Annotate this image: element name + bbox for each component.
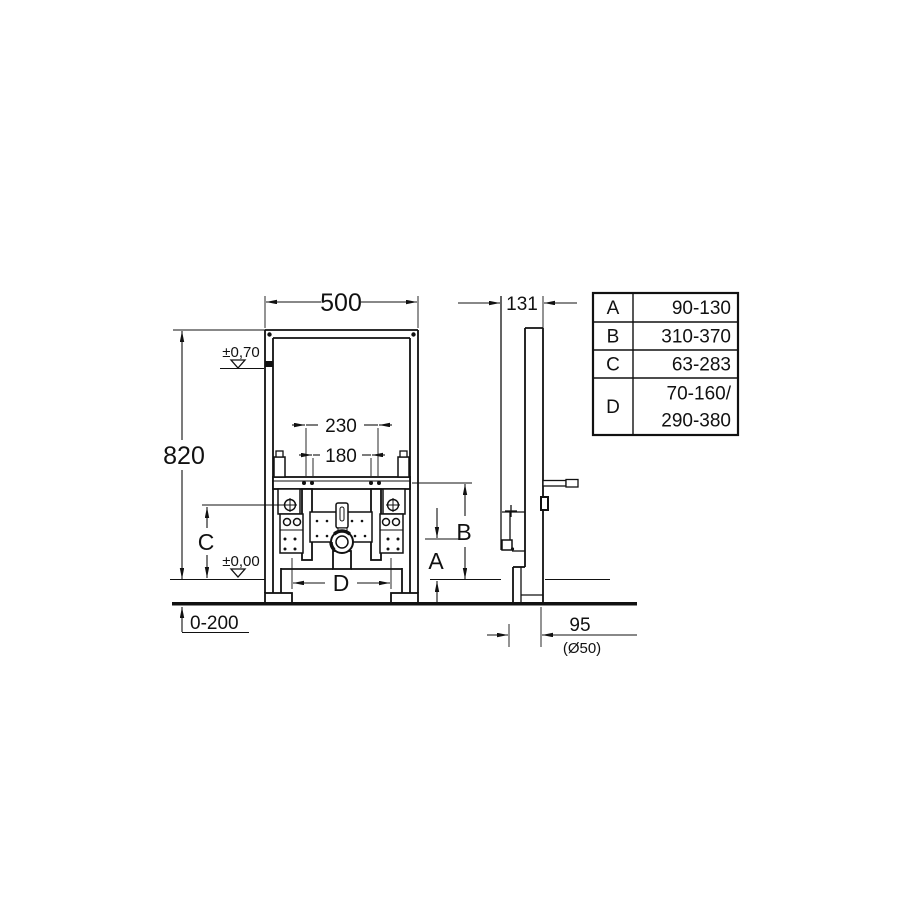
table-value: 290-380 xyxy=(661,411,731,432)
rivet xyxy=(387,548,390,551)
level-mark xyxy=(266,361,273,367)
drain-foot xyxy=(513,567,543,602)
level-triangle xyxy=(231,360,245,368)
floor-line xyxy=(172,602,637,606)
foot-plate xyxy=(391,593,418,603)
rivet xyxy=(387,538,390,541)
spacing-outer-label: 230 xyxy=(325,416,357,437)
dim-outlet-95: 95 (Ø50) xyxy=(487,607,637,657)
dim-b-label: B xyxy=(456,519,471,545)
table-value: 90-130 xyxy=(672,298,731,319)
rivet xyxy=(354,535,357,538)
dimension-table: A 90-130 B 310-370 C 63-283 D 70-160/ 29… xyxy=(593,293,738,435)
rail-profile xyxy=(525,328,543,603)
connection-cap xyxy=(566,480,578,488)
rivet xyxy=(326,520,329,523)
rivet xyxy=(397,548,400,551)
table-key: B xyxy=(607,327,620,348)
dim-depth-131: 131 xyxy=(458,294,577,328)
dim-width-500: 500 xyxy=(265,289,418,328)
level-zero-label: ±0,00 xyxy=(222,553,259,570)
corner-bolt xyxy=(411,332,415,336)
rivet xyxy=(351,520,354,523)
dim-spacing-180: 180 xyxy=(299,446,385,476)
hanger-tab xyxy=(398,457,409,477)
level-top-label: ±0,70 xyxy=(222,344,259,361)
level-marker-zero: ±0,00 xyxy=(170,553,265,580)
dim-a-label: A xyxy=(428,548,444,574)
rivet xyxy=(361,520,364,523)
corner-bolt xyxy=(267,332,271,336)
bolt-hole xyxy=(369,481,373,485)
technical-drawing-canvas: 500 820 ±0,70 230 xyxy=(0,0,900,900)
outlet-assembly xyxy=(310,503,372,569)
depth-label: 131 xyxy=(506,294,538,315)
dim-a: A xyxy=(425,508,610,602)
table-value: 310-370 xyxy=(661,327,731,348)
outlet-diameter-label: (Ø50) xyxy=(563,640,601,657)
bracket-foot xyxy=(502,540,512,550)
dim-d: D xyxy=(292,558,391,596)
floor-range-label: 0-200 xyxy=(190,613,239,634)
table-key: C xyxy=(606,355,620,376)
rivet xyxy=(326,535,329,538)
table-value: 63-283 xyxy=(672,355,731,376)
rivet xyxy=(397,538,400,541)
wall-bracket xyxy=(502,505,525,551)
outlet-offset-label: 95 xyxy=(569,615,590,636)
rivet xyxy=(364,535,367,538)
dim-c-label: C xyxy=(198,529,215,555)
table-key: D xyxy=(606,397,620,418)
front-view: 500 820 ±0,70 230 xyxy=(163,289,637,634)
hanger-tab xyxy=(274,457,285,477)
left-mounting-bracket xyxy=(278,489,303,553)
rail-clip xyxy=(541,497,548,510)
dim-floor-range: 0-200 xyxy=(182,607,249,634)
dim-d-label: D xyxy=(333,570,350,596)
bolt-hole xyxy=(310,481,314,485)
dim-width-label: 500 xyxy=(320,289,362,317)
rivet xyxy=(294,548,297,551)
rivet xyxy=(284,538,287,541)
level-triangle xyxy=(231,569,245,577)
bolt-hole xyxy=(302,481,306,485)
dim-height-label: 820 xyxy=(163,442,205,470)
water-connection xyxy=(541,480,578,511)
level-marker-top: ±0,70 xyxy=(220,344,264,369)
table-value: 70-160/ xyxy=(667,384,732,405)
rivet xyxy=(316,535,319,538)
hanger-tab-cap xyxy=(400,451,407,457)
foot-plate xyxy=(265,593,292,603)
rivet xyxy=(284,548,287,551)
installation-drawing-page: 500 820 ±0,70 230 xyxy=(0,0,900,900)
right-mounting-bracket xyxy=(380,489,405,553)
rivet xyxy=(316,520,319,523)
rivet xyxy=(511,547,514,550)
table-key: A xyxy=(607,298,620,319)
crossbar xyxy=(273,477,410,489)
spacing-inner-label: 180 xyxy=(325,446,357,467)
hanger-tab-cap xyxy=(276,451,283,457)
rivet xyxy=(294,538,297,541)
connection-rod xyxy=(543,481,566,487)
bolt-hole xyxy=(377,481,381,485)
